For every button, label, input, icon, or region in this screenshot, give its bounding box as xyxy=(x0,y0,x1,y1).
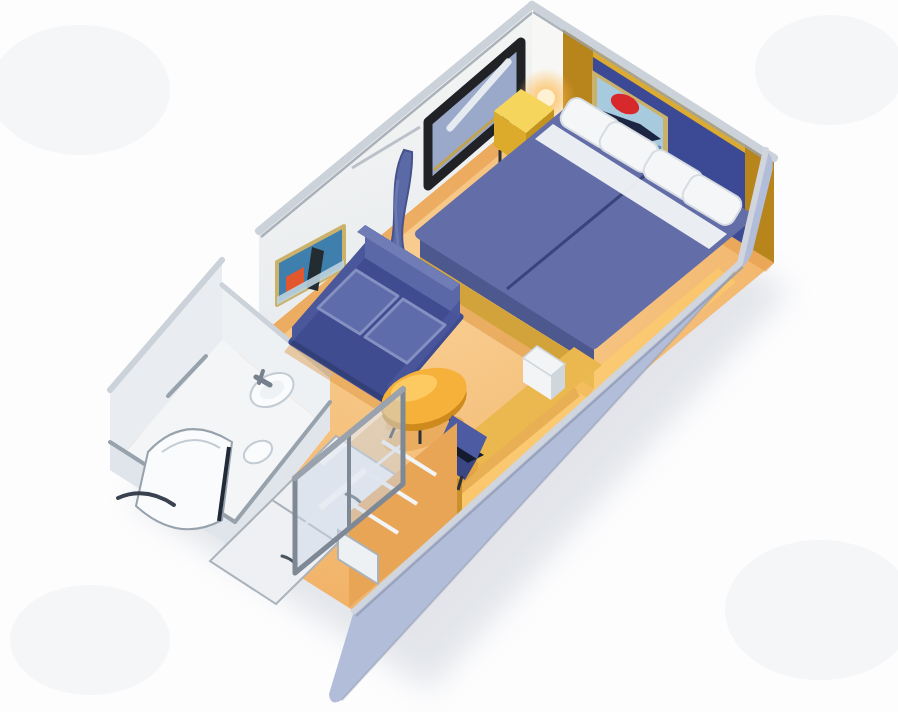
stateroom-floorplan-image xyxy=(0,0,898,712)
